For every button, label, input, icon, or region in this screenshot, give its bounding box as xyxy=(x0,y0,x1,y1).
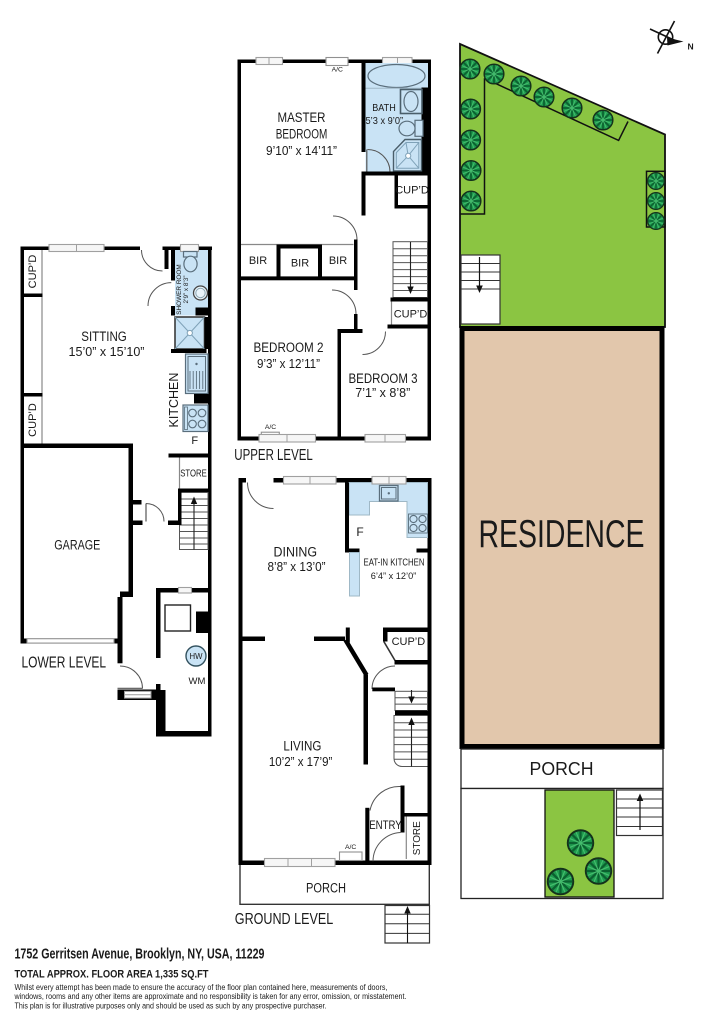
svg-text:15’0” x 15’10”: 15’0” x 15’10” xyxy=(69,344,145,359)
svg-text:6’4” x 12’0”: 6’4” x 12’0” xyxy=(371,571,417,582)
svg-text:SHOWER ROOM: SHOWER ROOM xyxy=(176,264,183,314)
svg-text:LIVING: LIVING xyxy=(283,739,321,754)
svg-text:DINING: DINING xyxy=(274,544,318,559)
svg-text:TOTAL APPROX. FLOOR AREA 1,335: TOTAL APPROX. FLOOR AREA 1,335 SQ.FT xyxy=(15,969,209,981)
svg-text:5’3 x 9’0”: 5’3 x 9’0” xyxy=(366,115,404,127)
svg-text:A/C: A/C xyxy=(332,66,343,73)
svg-text:KITCHEN: KITCHEN xyxy=(167,373,181,428)
svg-text:ENTRY: ENTRY xyxy=(369,820,402,832)
svg-text:BEDROOM 3: BEDROOM 3 xyxy=(349,371,418,386)
svg-text:windows, rooms and any other i: windows, rooms and any other items are a… xyxy=(14,992,407,1001)
svg-text:UPPER LEVEL: UPPER LEVEL xyxy=(234,447,313,464)
svg-text:BIR: BIR xyxy=(291,258,309,270)
svg-text:HW: HW xyxy=(190,652,204,661)
svg-text:9’3” x 12’11”: 9’3” x 12’11” xyxy=(257,356,320,371)
svg-text:F: F xyxy=(191,435,198,447)
svg-text:MASTER: MASTER xyxy=(278,110,326,125)
svg-text:LOWER LEVEL: LOWER LEVEL xyxy=(22,655,107,672)
svg-text:Whilst every attempt has been: Whilst every attempt has been made to en… xyxy=(15,983,388,992)
svg-text:CUP’D: CUP’D xyxy=(395,185,429,197)
svg-text:CUP’D: CUP’D xyxy=(394,309,428,321)
svg-text:WM: WM xyxy=(189,676,206,687)
svg-text:CUP’D: CUP’D xyxy=(27,403,39,437)
svg-text:1752 Gerritsen Avenue, Brookly: 1752 Gerritsen Avenue, Brooklyn, NY, USA… xyxy=(15,947,265,963)
svg-text:BATH: BATH xyxy=(372,103,396,114)
svg-text:PORCH: PORCH xyxy=(530,759,594,779)
svg-text:9’10” x 14’11”: 9’10” x 14’11” xyxy=(266,143,337,158)
svg-text:N: N xyxy=(688,42,694,52)
svg-text:A/C: A/C xyxy=(265,424,276,431)
svg-text:BEDROOM: BEDROOM xyxy=(276,127,328,142)
svg-text:BIR: BIR xyxy=(249,255,267,267)
svg-text:8’8” x 13’0”: 8’8” x 13’0” xyxy=(268,559,326,574)
svg-text:SITTING: SITTING xyxy=(81,329,127,344)
svg-text:EAT-IN KITCHEN: EAT-IN KITCHEN xyxy=(364,558,425,569)
svg-text:This plan is for illustrative: This plan is for illustrative purposes o… xyxy=(15,1001,327,1010)
svg-text:STORE: STORE xyxy=(411,821,423,855)
svg-text:PORCH: PORCH xyxy=(306,880,346,895)
svg-text:7’1” x 8’8”: 7’1” x 8’8” xyxy=(355,385,410,400)
svg-text:CUP’D: CUP’D xyxy=(27,255,39,289)
svg-text:F: F xyxy=(356,525,363,539)
svg-text:STORE: STORE xyxy=(180,468,207,480)
svg-text:RESIDENCE: RESIDENCE xyxy=(479,513,645,556)
svg-text:2’9” x 8’3”: 2’9” x 8’3” xyxy=(183,275,190,303)
svg-text:10’2” x 17’9”: 10’2” x 17’9” xyxy=(269,754,333,769)
svg-text:BIR: BIR xyxy=(329,255,347,267)
svg-text:A/C: A/C xyxy=(345,844,356,851)
svg-text:CUP’D: CUP’D xyxy=(392,636,426,648)
svg-text:BEDROOM 2: BEDROOM 2 xyxy=(254,340,324,355)
svg-text:GROUND LEVEL: GROUND LEVEL xyxy=(235,911,334,928)
svg-text:GARAGE: GARAGE xyxy=(54,538,100,553)
